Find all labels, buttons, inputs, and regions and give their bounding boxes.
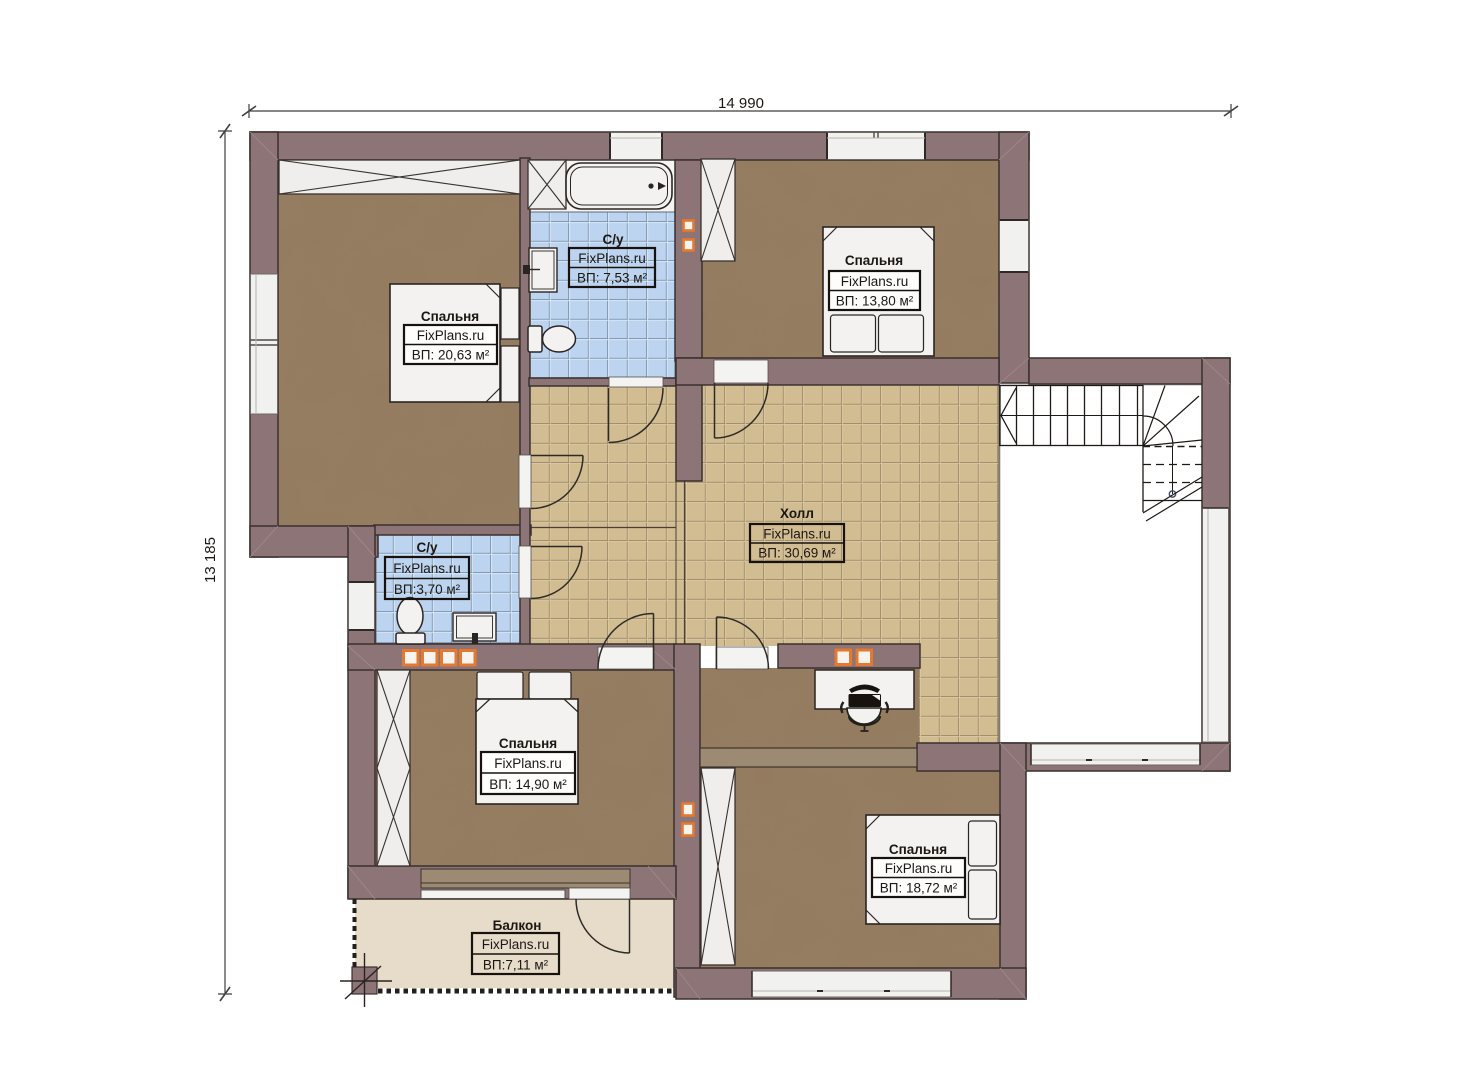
svg-text:Спальня: Спальня <box>889 842 947 857</box>
svg-text:Спальня: Спальня <box>845 253 903 268</box>
svg-text:FixPlans.ru: FixPlans.ru <box>763 527 831 542</box>
svg-text:FixPlans.ru: FixPlans.ru <box>393 561 461 576</box>
svg-text:FixPlans.ru: FixPlans.ru <box>494 756 562 771</box>
svg-text:ВП: 30,69 м²: ВП: 30,69 м² <box>758 546 836 561</box>
svg-text:Спальня: Спальня <box>421 309 479 324</box>
svg-text:ВП: 14,90 м²: ВП: 14,90 м² <box>489 777 567 792</box>
svg-text:Балкон: Балкон <box>493 918 542 933</box>
svg-text:FixPlans.ru: FixPlans.ru <box>578 251 646 266</box>
svg-text:ВП:7,11 м²: ВП:7,11 м² <box>483 958 549 973</box>
svg-text:Холл: Холл <box>780 506 814 521</box>
svg-text:FixPlans.ru: FixPlans.ru <box>482 937 550 952</box>
svg-text:ВП: 7,53 м²: ВП: 7,53 м² <box>577 271 648 286</box>
svg-text:С/у: С/у <box>416 540 438 555</box>
svg-text:13 185: 13 185 <box>202 537 219 583</box>
svg-text:ВП:3,70 м²: ВП:3,70 м² <box>394 582 461 597</box>
svg-text:FixPlans.ru: FixPlans.ru <box>417 328 485 343</box>
svg-text:ВП: 18,72 м²: ВП: 18,72 м² <box>880 881 958 896</box>
svg-text:14 990: 14 990 <box>718 95 764 112</box>
svg-text:ВП: 13,80 м²: ВП: 13,80 м² <box>836 294 914 309</box>
svg-text:ВП: 20,63 м²: ВП: 20,63 м² <box>412 348 490 363</box>
svg-text:FixPlans.ru: FixPlans.ru <box>885 861 953 876</box>
svg-text:FixPlans.ru: FixPlans.ru <box>841 274 909 289</box>
svg-text:Спальня: Спальня <box>499 736 557 751</box>
svg-text:С/у: С/у <box>602 232 624 247</box>
